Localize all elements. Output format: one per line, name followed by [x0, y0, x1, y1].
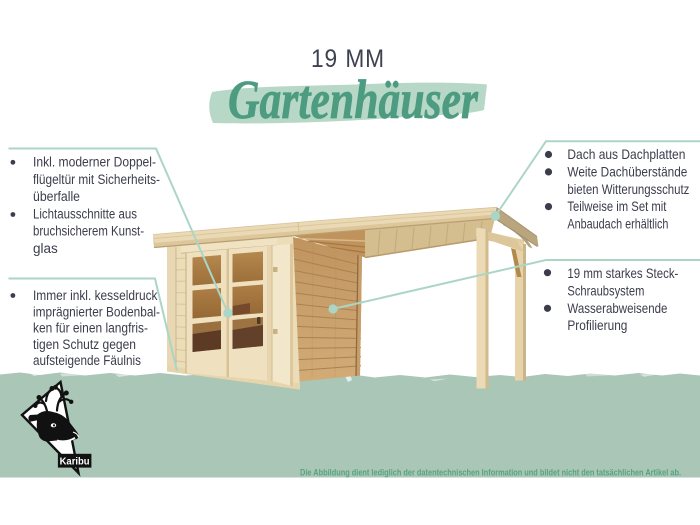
svg-text:glas: glas [33, 241, 58, 256]
svg-text:Inkl. moderner Doppel-: Inkl. moderner Doppel- [33, 155, 156, 170]
svg-text:Wasserabweisende: Wasserabweisende [567, 300, 667, 316]
svg-text:Profilierung: Profilierung [567, 317, 627, 333]
svg-text:Teilweise im Set mit: Teilweise im Set mit [567, 198, 666, 214]
svg-text:Immer inkl. kesseldruck: Immer inkl. kesseldruck [33, 288, 158, 303]
svg-text:Karibu: Karibu [60, 456, 90, 468]
svg-text:überfalle: überfalle [33, 189, 80, 204]
svg-text:Lichtausschnitte aus: Lichtausschnitte aus [33, 206, 137, 221]
svg-text:Gartenhäuser: Gartenhäuser [228, 69, 478, 130]
svg-text:Weite Dachüberstände: Weite Dachüberstände [567, 163, 687, 179]
svg-text:aufsteigende Fäulnis: aufsteigende Fäulnis [33, 353, 141, 368]
svg-text:imprägnierter Bodenbal-: imprägnierter Bodenbal- [33, 304, 160, 319]
svg-text:Schraubsystem: Schraubsystem [567, 282, 644, 298]
svg-text:Dach aus Dachplatten: Dach aus Dachplatten [567, 146, 685, 162]
svg-text:bieten Witterungsschutz: bieten Witterungsschutz [567, 181, 689, 197]
svg-text:Anbaudach erhältlich: Anbaudach erhältlich [567, 216, 668, 232]
svg-text:19 mm starkes Steck-: 19 mm starkes Steck- [567, 265, 678, 281]
svg-text:ken für einen langfris-: ken für einen langfris- [33, 321, 148, 336]
svg-text:flügeltür mit Sicherheits-: flügeltür mit Sicherheits- [33, 172, 160, 187]
svg-text:Die Abbildung dient lediglich: Die Abbildung dient lediglich der datent… [300, 467, 681, 477]
svg-text:tigen Schutz gegen: tigen Schutz gegen [33, 337, 136, 352]
svg-text:bruchsicherem Kunst-: bruchsicherem Kunst- [33, 224, 144, 239]
